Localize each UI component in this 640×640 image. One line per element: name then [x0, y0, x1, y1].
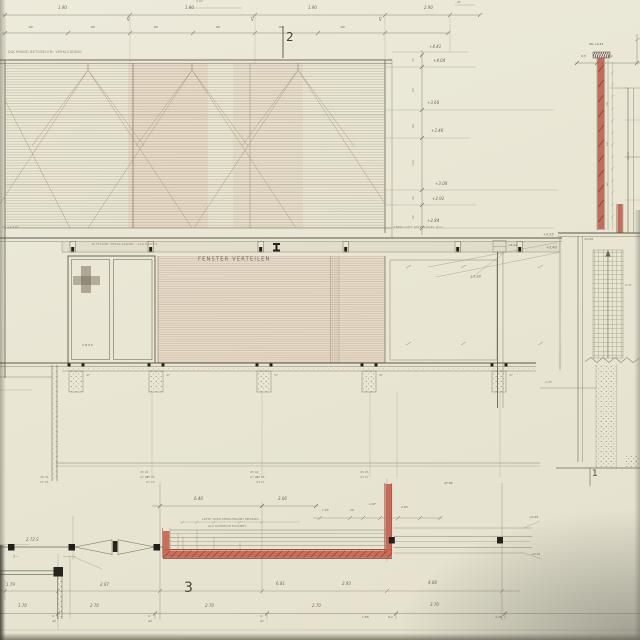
plan-stack-label: 27 24 [146, 481, 155, 484]
chain-dim-label: 46 [412, 196, 415, 200]
annotation-base-level: ±0.00 [584, 238, 593, 241]
detail-marker-1: 1 [592, 470, 598, 479]
top-dimension-chain [2, 5, 482, 63]
dim-label: 2.70 [312, 604, 321, 608]
dim-note: 2.02 [196, 0, 203, 3]
plan-stack-label: 45 44 [40, 476, 49, 479]
annotation-skylight: OBERLICHT KIPPFLÜGEL ALU [393, 226, 443, 229]
dim-label: 1.90 [185, 6, 194, 10]
plan-stack-label: 45 45 [146, 476, 155, 479]
dim-label: .90 [28, 26, 33, 29]
dim-label: .90 [153, 26, 158, 29]
plan-detail-3 [5, 478, 542, 630]
dim-note: .45 [456, 1, 461, 4]
chain-dim-label: 152 [412, 160, 415, 166]
level-label: +2.84 [427, 219, 439, 223]
glazed-panels [390, 238, 560, 408]
dim-label: 2.70 [430, 603, 439, 607]
level-label: +3.52 [543, 233, 554, 237]
dim-label: 2.07 [100, 583, 109, 587]
dim-label: 2.70 [90, 604, 99, 608]
chain-dim-label: 52 [606, 142, 609, 146]
annotation-roof-edge: DACHRAND BETONELEM. VERKLEIDUNG [8, 51, 82, 54]
level-label: +3.46 [431, 129, 443, 133]
dim-label: 45 [127, 17, 131, 21]
dim-label: 1.03 [322, 509, 329, 512]
dim-label: 2.70 [205, 604, 214, 608]
dim-label: .90 [278, 26, 283, 29]
dim-label: .90 [340, 26, 345, 29]
dim-label: 4.88 [428, 581, 437, 585]
dim-label: 1.90 [308, 6, 317, 10]
dim-label: .40 [349, 509, 354, 512]
dim-label: 2.90 [424, 6, 433, 10]
post-stack-label: 45 45 [140, 471, 149, 474]
post-stack-label: 24 27 [360, 476, 369, 479]
chain-dim-label: 37 [412, 58, 415, 62]
dim-label: 1.70 [18, 604, 27, 608]
plan-stack-label: 24 27 [256, 481, 265, 484]
post-mark: 47 [509, 374, 513, 377]
axis-ref-label: 4 [148, 615, 150, 618]
axis-ref-label: 44 [148, 620, 152, 623]
chain-dim-label: 47 [606, 182, 609, 186]
annotation-sill-note: ALU SCHWELLE ELOXIERT [208, 525, 246, 528]
leader-label: +0.45 [529, 516, 538, 519]
dim-label: 2.06 [278, 497, 287, 501]
level-label: +4.04 [433, 59, 445, 63]
level-label: +4.41 [429, 45, 441, 49]
level-label: +2.92 [432, 197, 444, 201]
post-stack-label: 45 44 [250, 471, 259, 474]
dim-label: 6.40 [194, 497, 203, 501]
axis-ref-label: 4 [52, 615, 54, 618]
dim-label: 45 [379, 17, 383, 21]
dim-label: .90 [90, 26, 95, 29]
level-label: +3.46 [546, 246, 557, 250]
right-wall-section-top [575, 34, 640, 233]
post-stack-label: 45 45 [360, 471, 369, 474]
folding-door-plan-symbol [0, 540, 163, 570]
axis-ref-label: 4.28 [495, 616, 502, 619]
axis-ref-label: 8.2 [388, 616, 393, 619]
post-mark: 47 [379, 374, 383, 377]
dim-label: 2.93 [342, 582, 351, 586]
annotation-masonry: 2.47 [625, 284, 632, 287]
level-label: +3.60 [427, 101, 439, 105]
post-mark: 47 [86, 374, 90, 377]
dim-label: 45 [251, 17, 255, 21]
level-label: +3.44 [508, 244, 517, 247]
dim-label: 2.93 [401, 506, 408, 509]
annotation-door-width: 2.72 S [26, 538, 39, 542]
plan-stack-label: 44 45 [256, 476, 265, 479]
annotation-cap: OK +4.41 [589, 43, 603, 46]
dim-label: 1.79 [6, 583, 15, 587]
dim-label: 1.67 [369, 503, 376, 506]
dim-label: 1.90 [58, 6, 67, 10]
axis-ref-label: 47 [260, 620, 264, 623]
dim-label: 47.88 [444, 482, 453, 485]
elevation-level-markers [385, 50, 558, 235]
detail-marker-3: 3 [184, 581, 193, 595]
axis-ref-label: 1.80 [362, 616, 369, 619]
annotation-sill-note: LATTE 30/50 VERSCHRAUBT MESSING [202, 518, 259, 521]
axis-ref-label: 4 [260, 615, 262, 618]
blinds-hatched-area [158, 256, 385, 363]
drawing-linework [0, 0, 640, 640]
dim-label: 9.5 [581, 55, 586, 58]
sill-band-and-posts [0, 363, 540, 481]
level-label: +3.38 [470, 275, 481, 279]
dim-label: 12 [609, 55, 613, 58]
bottom-dimension-chains [0, 589, 640, 630]
level-label: +3.08 [435, 182, 447, 186]
chain-dim-label: 97 [412, 88, 415, 92]
detail-marker-2: 2 [286, 31, 294, 43]
axis-ref-label: 43 [52, 620, 56, 623]
chain-dim-label: 22 [412, 215, 415, 219]
dim-label: .90 [215, 26, 220, 29]
annotation-glazing-rail: KITTLOSE VERGLASUNG · ALU PROFIL [92, 243, 158, 246]
right-wall-section-bottom [540, 233, 640, 486]
chain-dim-label: 36 [606, 102, 609, 106]
annotation-window-mark: 2 Ø 9 6 [82, 344, 93, 347]
annotation-wall-base: OK +2.175 [2, 226, 18, 229]
dim-label: 6.81 [276, 582, 285, 586]
plan-subdetail-lower-left [0, 556, 76, 619]
plan-stack-label: 27 24 [40, 481, 49, 484]
post-mark: 47 [166, 374, 170, 377]
post-mark: 47 [274, 374, 278, 377]
chain-dim-label: 66 [412, 124, 415, 128]
annotation-footing-leader: -1.05 [544, 381, 552, 384]
annotation-window-area: FENSTER VERTEILEN [198, 257, 271, 262]
leader-label: +0.12 [531, 553, 540, 556]
annotation-corner-ref: 2~ [13, 555, 18, 559]
architectural-drawing-sheet: 1.90 45 1.90 45 1.90 45 2.90 2.02 .45 .9… [0, 0, 640, 640]
annotation-glass: GLAS [627, 152, 630, 160]
